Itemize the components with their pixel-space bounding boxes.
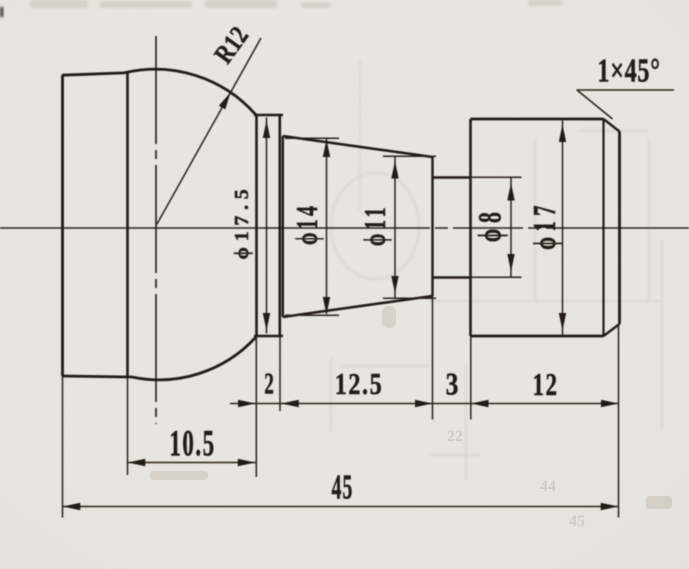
svg-text:3: 3 [446, 367, 459, 402]
svg-text:ϕ8: ϕ8 [472, 207, 509, 243]
svg-text:22: 22 [447, 428, 463, 445]
svg-text:ϕ17.5: ϕ17.5 [231, 184, 253, 260]
svg-text:12: 12 [533, 367, 559, 403]
svg-text:1×45°: 1×45° [597, 53, 660, 90]
svg-text:12.5: 12.5 [335, 367, 384, 402]
svg-text:2: 2 [264, 366, 274, 401]
svg-text:ϕ17: ϕ17 [527, 200, 563, 250]
svg-text:44: 44 [540, 478, 556, 495]
svg-text:45: 45 [569, 513, 585, 530]
svg-text:45: 45 [332, 469, 354, 507]
svg-text:ϕ11: ϕ11 [358, 204, 392, 246]
svg-text:10.5: 10.5 [169, 423, 215, 464]
svg-text:ϕ14: ϕ14 [290, 203, 324, 245]
